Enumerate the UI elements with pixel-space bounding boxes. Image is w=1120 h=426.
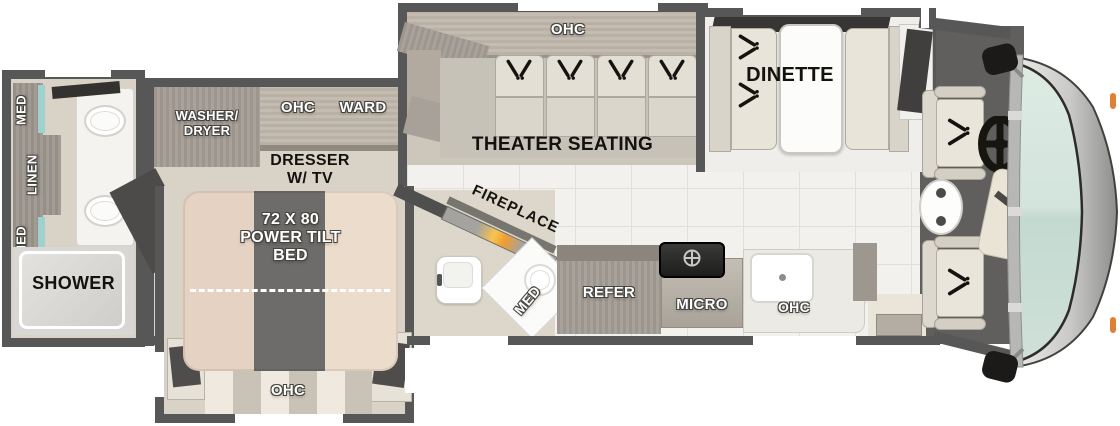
shower-label: SHOWER	[13, 268, 134, 298]
seat-recline-icon	[607, 59, 635, 81]
cab-table-dot	[936, 216, 946, 226]
theater-seat-cushion	[648, 97, 697, 137]
kitchen-ohc-label: OHC	[757, 298, 831, 318]
front-top-window-marker	[921, 6, 929, 28]
linen-label: LINEN	[20, 133, 46, 217]
rv-floorplan: MED LINEN MED SHOWER WASHER/ DRYER OHC W…	[0, 0, 1120, 426]
front-cap	[975, 15, 1120, 415]
cab-table-dot	[936, 188, 946, 198]
pillar-notch	[1008, 207, 1022, 216]
bed-label: 72 X 80 POWER TILT BED	[193, 203, 388, 273]
pillar-notch	[1008, 111, 1022, 120]
dinette-top-window-marker	[743, 6, 861, 15]
theater-seat-cushion	[495, 97, 544, 137]
bed-ohc-label: OHC	[238, 378, 338, 404]
toilet-flush-button	[437, 274, 442, 286]
med-cabinet-top-accent	[38, 85, 45, 133]
theater-seat-cushion	[546, 97, 595, 137]
bed-slide-right-window-marker	[405, 348, 414, 393]
seat-recline-icon	[947, 117, 971, 147]
refrigerator-top-band	[557, 245, 661, 261]
bottom-window-marker	[430, 336, 508, 345]
med-top-label: MED	[10, 84, 34, 136]
faucet-dot	[779, 274, 786, 281]
seat-recline-icon	[947, 267, 971, 297]
bottom-window-marker	[753, 336, 856, 345]
ward-label: WARD	[328, 95, 398, 121]
refer-label: REFER	[564, 282, 654, 304]
entry-step	[876, 314, 922, 336]
bed-slide-left-window-marker	[155, 352, 164, 397]
pillar-notch	[1008, 303, 1022, 312]
seat-recline-icon	[738, 33, 760, 61]
dinette-bench-back-left	[709, 26, 731, 152]
bath-sink-icon	[84, 105, 126, 137]
burner-icon	[682, 248, 702, 268]
theater-seating-label: THEATER SEATING	[430, 133, 695, 157]
seat-recline-icon	[556, 59, 584, 81]
counter-end-cap	[853, 243, 877, 301]
micro-label: MICRO	[664, 294, 740, 316]
marker-light-icon	[1110, 317, 1116, 333]
bedroom-ohc-label: OHC	[268, 95, 328, 121]
dinette-bench-right	[845, 28, 889, 150]
toilet-seat	[443, 262, 473, 288]
marker-light-icon	[1110, 93, 1116, 109]
rear-bath-top-window-marker	[45, 68, 111, 77]
seat-recline-icon	[505, 59, 533, 81]
dinette-table	[779, 24, 843, 154]
dinette-label: DINETTE	[733, 62, 847, 88]
bed-slide-bottom-window-marker	[235, 414, 343, 423]
theater-seat-cushion	[597, 97, 646, 137]
washer-dryer-label: WASHER/ DRYER	[156, 104, 258, 144]
bed-fold-dashed-line	[190, 289, 390, 292]
seat-recline-icon	[658, 59, 686, 81]
theater-top-window-marker	[518, 1, 658, 11]
theater-ohc-label: OHC	[528, 17, 608, 43]
